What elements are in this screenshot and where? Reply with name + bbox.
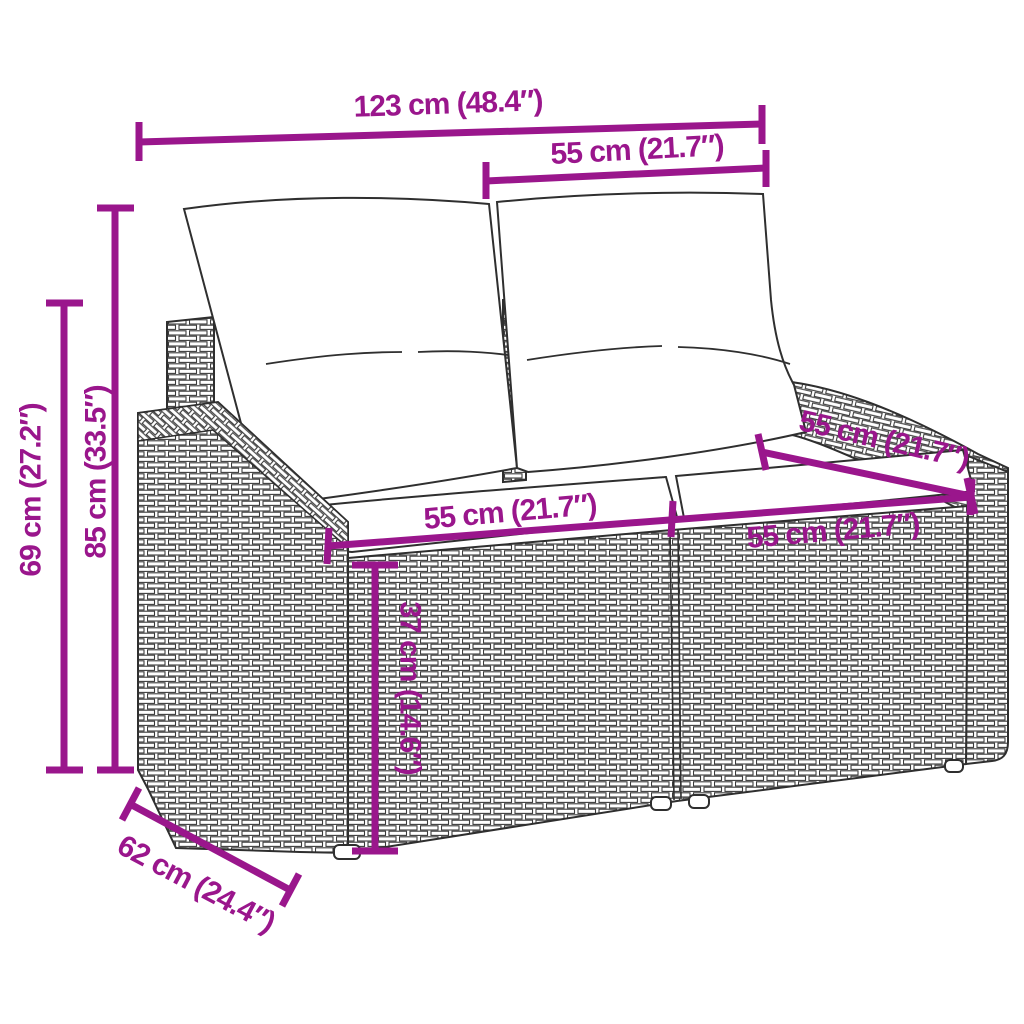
- back-cushion-right: [497, 193, 806, 472]
- dimension-tick: [671, 501, 673, 537]
- dim-label-overall-width: 123 cm (48.4″): [353, 84, 543, 124]
- diagram-canvas: 123 cm (48.4″) 55 cm (21.7″) 85 cm (33.5…: [0, 0, 1024, 1024]
- dimension-back-section-width: 55 cm (21.7″): [486, 129, 766, 199]
- dim-label-back-section-width: 55 cm (21.7″): [550, 129, 725, 171]
- product-dimension-diagram: 123 cm (48.4″) 55 cm (21.7″) 85 cm (33.5…: [0, 0, 1024, 1024]
- dimension-line: [486, 168, 766, 181]
- dimension-tick: [327, 528, 329, 564]
- dim-label-armrest-height: 69 cm (27.2″): [15, 403, 48, 576]
- dim-label-seat-height: 37 cm (14.6″): [394, 601, 427, 774]
- dimension-armrest-height: 69 cm (27.2″): [15, 303, 84, 770]
- dimension-total-height: 85 cm (33.5″): [80, 208, 135, 770]
- sofa-foot: [689, 795, 709, 808]
- sofa-foot: [945, 760, 963, 772]
- sofa-foot: [651, 797, 671, 810]
- dim-label-total-height: 85 cm (33.5″): [80, 385, 113, 558]
